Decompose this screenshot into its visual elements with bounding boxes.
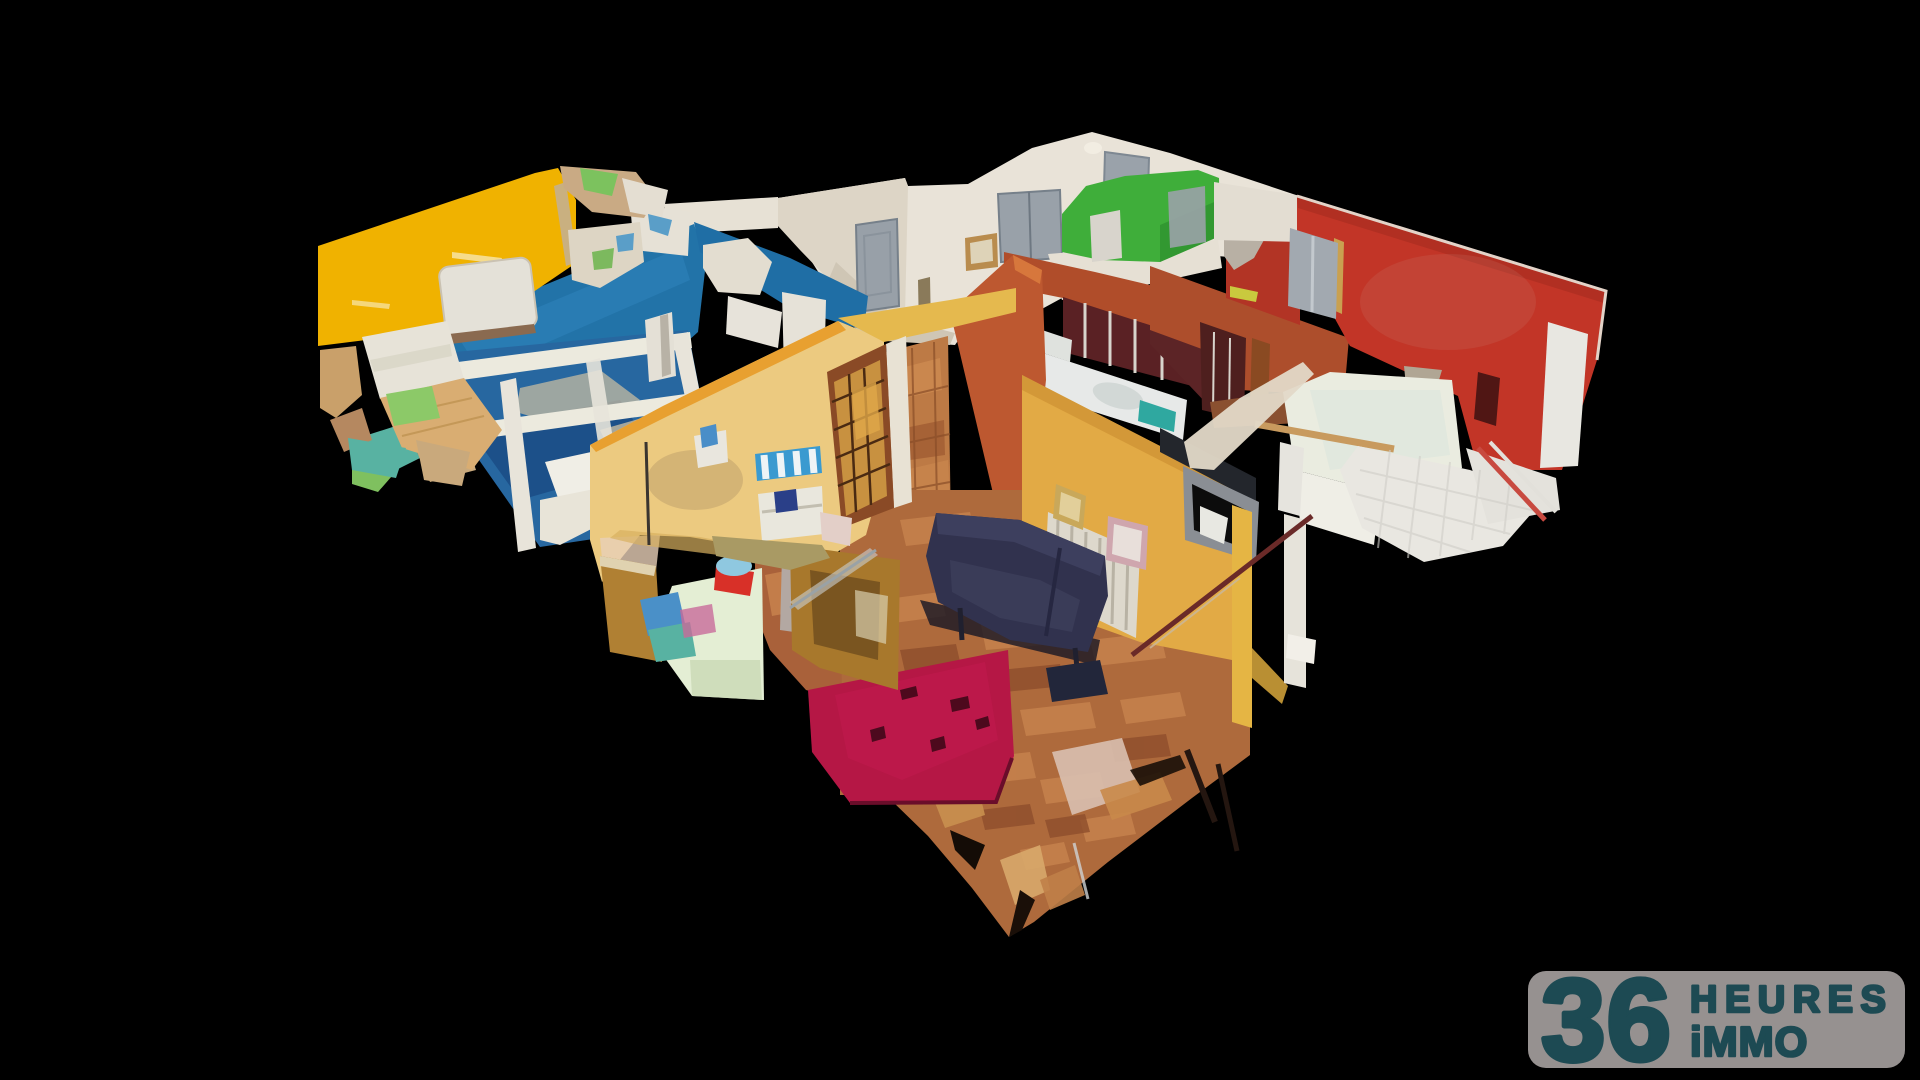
svg-text:36: 36: [1541, 955, 1672, 1080]
svg-text:iMMO: iMMO: [1690, 1018, 1808, 1065]
svg-text:HEURES: HEURES: [1690, 979, 1893, 1021]
